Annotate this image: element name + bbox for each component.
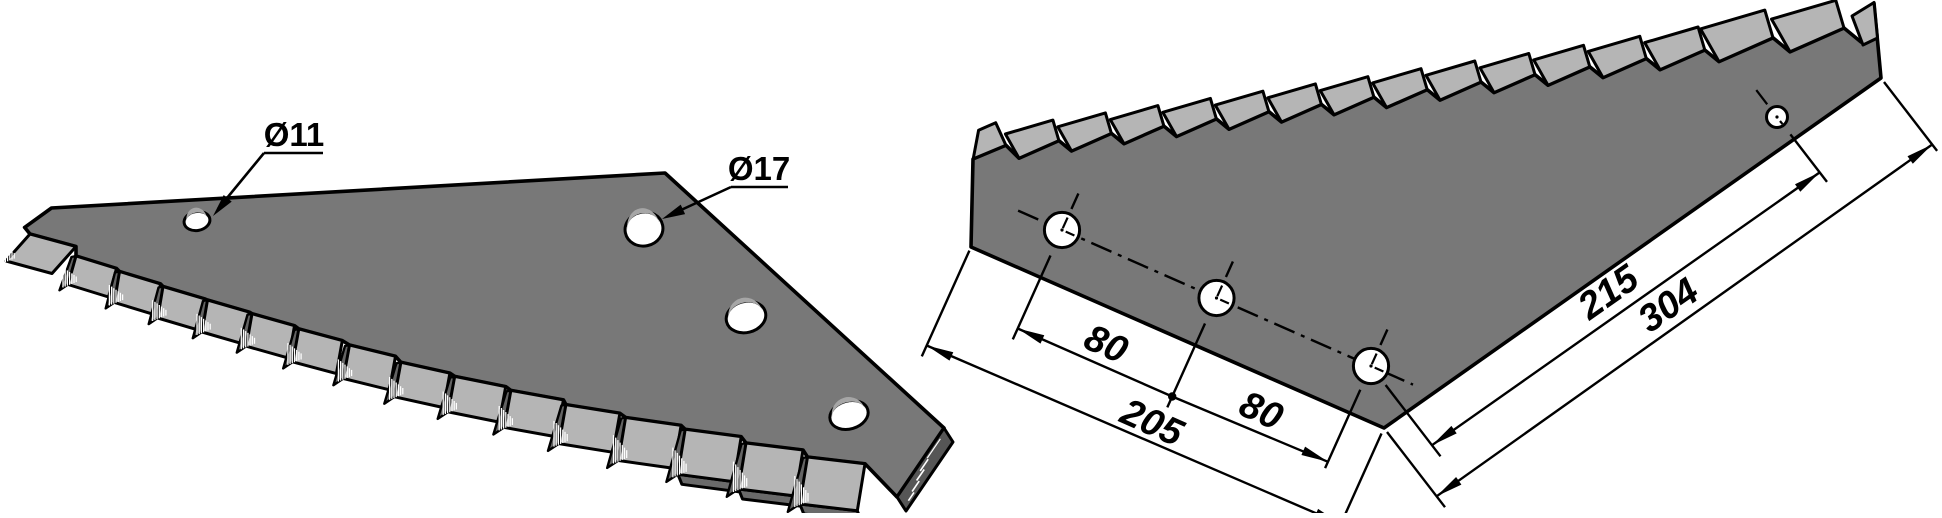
svg-text:Ø11: Ø11: [264, 116, 325, 153]
svg-text:Ø17: Ø17: [728, 150, 790, 187]
